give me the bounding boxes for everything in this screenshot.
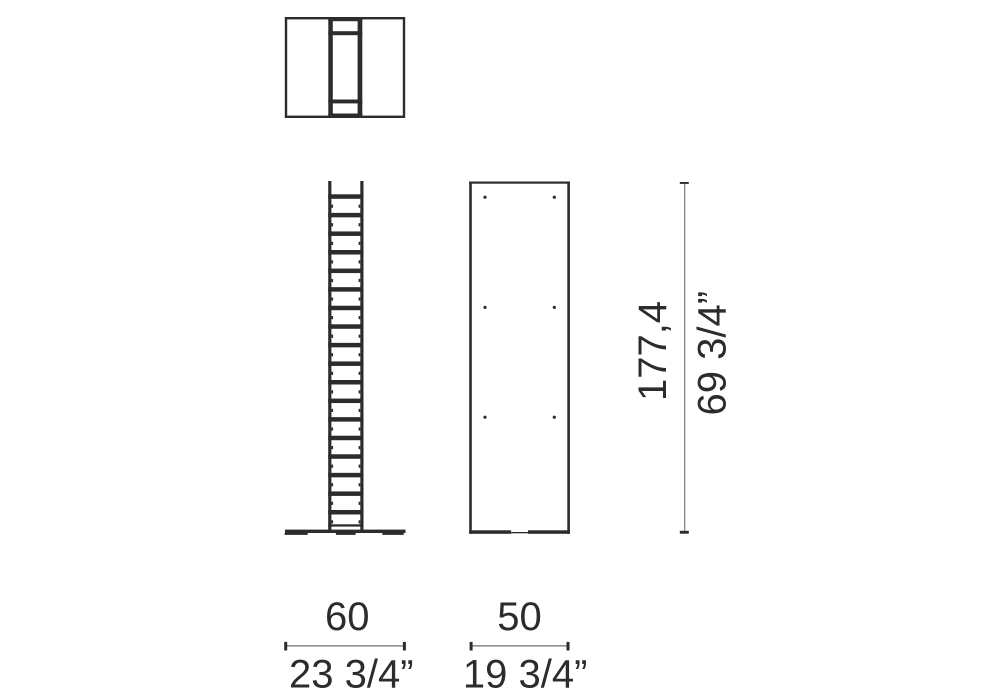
- svg-text:23 3/4”: 23 3/4”: [289, 653, 414, 697]
- svg-text:19 3/4”: 19 3/4”: [463, 653, 588, 697]
- svg-text:69 3/4”: 69 3/4”: [691, 291, 735, 416]
- svg-text:177,4: 177,4: [631, 301, 675, 401]
- svg-text:60: 60: [325, 595, 370, 639]
- svg-text:50: 50: [497, 595, 542, 639]
